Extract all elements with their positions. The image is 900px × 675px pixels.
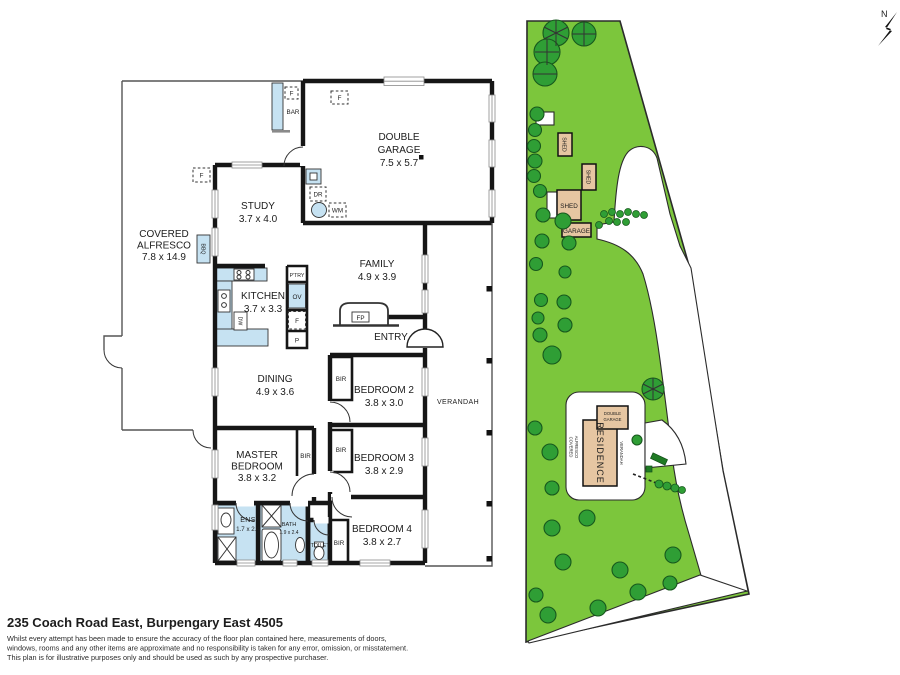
- bir-label: BIR: [300, 453, 311, 460]
- site-verandah-label: VERANDAH: [619, 441, 624, 464]
- bar-base: [272, 130, 290, 133]
- disclaimer-line: Whilst every attempt has been made to en…: [7, 634, 387, 643]
- room-dims-bed4: 3.8 x 2.7: [363, 537, 402, 548]
- room-dims-study: 3.7 x 4.0: [239, 214, 278, 225]
- floorplan-page: SHED SHED SHED GARAGE DOUBLE GARAGE RESI…: [0, 0, 900, 675]
- bush: [655, 480, 663, 488]
- room-dims-bed3: 3.8 x 2.9: [365, 466, 404, 477]
- room-dims-bath: 1.9 x 2.4: [279, 530, 298, 536]
- site-plan: SHED SHED SHED GARAGE DOUBLE GARAGE RESI…: [526, 20, 749, 643]
- entry-label: ENTRY: [374, 332, 408, 343]
- room-label-bath: BATH: [282, 522, 297, 528]
- room-dims-family: 4.9 x 3.9: [358, 272, 397, 283]
- room-labels: DOUBLEGARAGE 7.5 x 5.7 STUDY 3.7 x 4.0 C…: [137, 132, 421, 548]
- disclaimer-line: This plan is for illustrative purposes o…: [7, 653, 328, 662]
- oven-label: OV: [292, 294, 302, 301]
- fireplace-label: FP: [356, 315, 364, 322]
- address-title: 235 Coach Road East, Burpengary East 450…: [7, 615, 283, 630]
- pantry-label: P'TRY: [290, 273, 305, 279]
- room-label-master: MASTERBEDROOM: [231, 450, 283, 473]
- room-dims-dining: 4.9 x 3.6: [256, 387, 295, 398]
- pantry-p-label: P: [295, 338, 299, 345]
- room-label-bed2: BEDROOM 2: [354, 385, 414, 396]
- shed-2-label: SHED: [585, 170, 591, 185]
- site-double-garage-line2: GARAGE: [604, 417, 622, 422]
- room-label-bed4: BEDROOM 4: [352, 524, 412, 535]
- bir-label: BIR: [334, 540, 345, 547]
- laundry-basin: [312, 203, 327, 218]
- room-dims-alfresco: 7.8 x 14.9: [142, 252, 186, 263]
- site-garage-label: GARAGE: [563, 228, 590, 235]
- disclaimer-line: windows, rooms and any other items are a…: [6, 644, 408, 653]
- room-label-alfresco: COVEREDALFRESCO: [137, 229, 191, 252]
- garden-bush: [632, 435, 642, 445]
- fridge-label: F: [290, 91, 294, 98]
- floor-plan: FP F F F DR WM F BAR BBQ DW P'TRY OV P B…: [104, 77, 495, 566]
- bar-label: BAR: [287, 109, 300, 116]
- room-dims-kitchen: 3.7 x 3.3: [244, 304, 283, 315]
- room-label-garage: DOUBLEGARAGE: [378, 132, 421, 156]
- kitchen-island: [216, 329, 268, 346]
- footer: 235 Coach Road East, Burpengary East 450…: [6, 615, 408, 662]
- garden-box: [646, 466, 652, 472]
- bush: [663, 482, 671, 490]
- bush: [671, 484, 679, 492]
- room-dims-bed2: 3.8 x 3.0: [365, 398, 404, 409]
- washing-machine-label: WM: [332, 208, 343, 215]
- fireplace: FP: [333, 303, 399, 326]
- room-label-study: STUDY: [241, 201, 275, 212]
- bir-label: BIR: [336, 376, 347, 383]
- bbq-label: BBQ: [200, 244, 206, 255]
- bir-label: BIR: [336, 447, 347, 454]
- room-label-ens: ENS: [240, 517, 256, 524]
- site-alfresco-line2: ALFRESCO: [574, 436, 579, 459]
- dryer-label: DR: [313, 192, 323, 199]
- room-label-dining: DINING: [258, 374, 293, 385]
- fridge-label: F: [338, 95, 342, 102]
- bath-basin: [296, 538, 305, 553]
- room-dims-garage: 7.5 x 5.7: [380, 158, 419, 169]
- north-label: N: [881, 9, 888, 19]
- bar-counter: [272, 83, 283, 130]
- bush: [679, 487, 686, 494]
- plan-canvas: SHED SHED SHED GARAGE DOUBLE GARAGE RESI…: [0, 0, 900, 675]
- site-double-garage-line1: DOUBLE: [604, 411, 621, 416]
- site-alfresco-line1: COVERED: [569, 437, 574, 458]
- compass: N: [878, 9, 897, 46]
- room-dims-master: 3.8 x 3.2: [238, 473, 277, 484]
- room-label-kitchen: KITCHEN: [241, 291, 285, 302]
- shed-1-label: SHED: [561, 137, 567, 152]
- verandah: [425, 223, 492, 566]
- room-dims-ens: 1.7 x 2.4: [236, 526, 260, 533]
- entry-door: [407, 329, 443, 347]
- dw-label: DW: [237, 317, 243, 326]
- room-label-family: FAMILY: [360, 259, 395, 270]
- verandah-label: VERANDAH: [437, 399, 479, 406]
- shed-3-label: SHED: [560, 203, 578, 210]
- toilet-label: TOILET: [311, 543, 330, 549]
- fridge-label: F: [295, 318, 299, 325]
- fridge-label: F: [200, 173, 204, 180]
- room-label-bed3: BEDROOM 3: [354, 453, 414, 464]
- site-residence-label: RESIDENCE: [595, 422, 605, 484]
